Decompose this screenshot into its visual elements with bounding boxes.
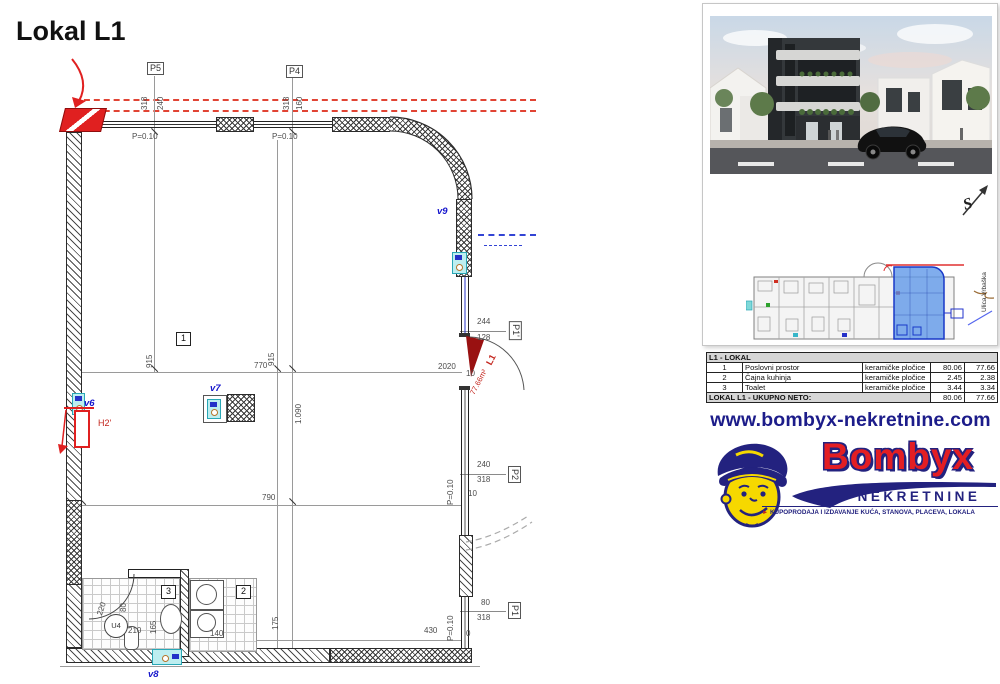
- vent-fixture-v8: [152, 649, 182, 665]
- page: Lokal L1: [0, 0, 1000, 684]
- blue-dashed-line-2: [484, 245, 522, 246]
- vent-label-v6: v6: [84, 398, 95, 409]
- dim-165: 165: [150, 621, 158, 634]
- vent-fixture-v9: [452, 252, 467, 274]
- dim-p5-p010: P=0.10: [132, 133, 158, 141]
- brand-name: Bombyx: [798, 436, 998, 478]
- row-name: Čajna kuhinja: [743, 373, 863, 383]
- window-top-1: [98, 121, 216, 128]
- dim-p4-160: 160: [296, 97, 304, 110]
- wall-left-pier: [66, 500, 82, 585]
- table-header: L1 - LOKAL: [707, 353, 998, 363]
- row-material: keramičke pločice: [863, 373, 931, 383]
- dim-790: 790: [262, 494, 275, 502]
- entrance-marker-block: [59, 108, 107, 132]
- dim-p5-240: 240: [157, 97, 165, 110]
- dim-p2-240: 240: [477, 461, 490, 469]
- column-v7: [227, 394, 255, 422]
- dim-p1-p010: P=0.10: [447, 615, 455, 641]
- site-plan: [746, 251, 996, 343]
- grid-marker-p2: P2: [508, 466, 521, 483]
- window-top-2: [254, 121, 332, 128]
- wall-bottom-right: [330, 648, 472, 663]
- dim-p5-318: 318: [141, 97, 149, 110]
- vent-label-v7: v7: [210, 383, 221, 394]
- pavement-line: [60, 666, 480, 667]
- street-label: Ulica Vrbaška: [981, 272, 988, 312]
- row-net: 77.66: [965, 363, 998, 373]
- room-label-2: 2: [236, 585, 251, 599]
- grid-marker-p1p: P1': [509, 321, 522, 340]
- vent-label-v8: v8: [148, 669, 159, 680]
- dim-p1-80: 80: [481, 599, 490, 607]
- table-row: 1 Poslovni prostor keramičke pločice 80.…: [707, 363, 998, 373]
- row-num: 2: [707, 373, 743, 383]
- dim-p1-318: 318: [477, 614, 490, 622]
- room-label-3: 3: [161, 585, 176, 599]
- pier-top-2: [332, 117, 392, 132]
- dim-915-a: 915: [146, 355, 154, 368]
- row-net: 2.38: [965, 373, 998, 383]
- dim-128: 128: [477, 334, 490, 342]
- grid-marker-p4: P4: [286, 65, 303, 78]
- area-table: L1 - LOKAL 1 Poslovni prostor keramičke …: [706, 352, 998, 403]
- vent-label-v9: v9: [437, 206, 448, 217]
- dim-p2-318: 318: [477, 476, 490, 484]
- tree: [750, 92, 774, 116]
- table-row: 3 Toalet keramičke pločice 3.44 3.34: [707, 383, 998, 393]
- dim-p4-318: 318: [283, 97, 291, 110]
- row-material: keramičke pločice: [863, 363, 931, 373]
- pier-top-1: [216, 117, 254, 132]
- dim-430: 430: [424, 627, 437, 635]
- row-area: 2.45: [931, 373, 965, 383]
- website-url[interactable]: www.bombyx-nekretnine.com: [703, 409, 998, 432]
- floor-plan: U4 P5 P4 P1': [0, 0, 560, 684]
- dim-770: 770: [254, 362, 267, 370]
- grid-line-p4: [292, 78, 293, 652]
- visual-panel: S Ulica Vrbaška: [702, 3, 998, 346]
- road: [710, 148, 992, 174]
- wall-curve-outline: [388, 115, 476, 203]
- dim-175: 175: [272, 617, 280, 630]
- row-material: keramičke pločice: [863, 383, 931, 393]
- brand-tagline: ► KUPOPRODAJA I IZDAVANJE KUĆA, STANOVA,…: [762, 506, 998, 516]
- row-num: 1: [707, 363, 743, 373]
- grid-line-a: [277, 140, 278, 652]
- room-label-1: 1: [176, 332, 191, 346]
- dim-line-770: [82, 372, 462, 373]
- dim-915-b: 915: [268, 353, 276, 366]
- dim-210: 210: [128, 627, 141, 635]
- table-row: 2 Čajna kuhinja keramičke pločice 2.45 2…: [707, 373, 998, 383]
- table-footer-row: LOKAL L1 - UKUPNO NETO: 80.06 77.66: [707, 393, 998, 403]
- row-net: 3.34: [965, 383, 998, 393]
- tagline-text: KUPOPRODAJA I IZDAVANJE KUĆA, STANOVA, P…: [770, 509, 975, 516]
- entrance-arrow-icon: [58, 55, 108, 111]
- row-area: 80.06: [931, 363, 965, 373]
- north-arrow-icon: S: [955, 181, 993, 223]
- site-unit-l1-highlight: [894, 267, 944, 339]
- dim-p1-0: 0: [466, 630, 470, 638]
- radiator-label: H2': [98, 418, 111, 428]
- dim-244: 244: [477, 318, 490, 326]
- radiator-icon: [74, 410, 90, 448]
- dim-p2-p010: P=0.10: [447, 479, 455, 505]
- row-name: Poslovni prostor: [743, 363, 863, 373]
- kitchen-sink-icon: [196, 584, 217, 605]
- row-num: 3: [707, 383, 743, 393]
- dim-p4-p010: P=0.10: [272, 133, 298, 141]
- grid-marker-p5: P5: [147, 62, 164, 75]
- tagline-arrow-icon: ►: [762, 509, 768, 516]
- table-footer-label: LOKAL L1 - UKUPNO NETO:: [707, 393, 931, 403]
- door-swing-dashed: [462, 505, 542, 560]
- dim-80a: 80: [120, 603, 128, 612]
- window-p1: [461, 597, 469, 648]
- dim-10a: 10: [466, 370, 475, 378]
- glass-right-1: [461, 277, 469, 333]
- bath-door-arc: [84, 570, 140, 626]
- brand-subtitle: NEKRETNINE: [840, 489, 998, 504]
- vent-fixture-v7: [207, 399, 221, 419]
- dim-p2-10: 10: [468, 490, 477, 498]
- dim-140: 140: [210, 630, 223, 638]
- red-dashed-line-bottom: [74, 110, 536, 112]
- mascot-icon: [706, 436, 798, 533]
- dim-1090: 1.090: [295, 404, 303, 424]
- grid-marker-p1: P1: [508, 602, 521, 619]
- building-render-image: [710, 16, 992, 174]
- logo: Bombyx NEKRETNINE ► KUPOPRODAJA I IZDAVA…: [706, 434, 998, 534]
- row-name: Toalet: [743, 383, 863, 393]
- footer-area: 80.06: [931, 393, 965, 403]
- row-area: 3.44: [931, 383, 965, 393]
- blue-dashed-line-1: [478, 234, 536, 236]
- dim-line-790: [66, 505, 462, 506]
- washbasin-icon: [160, 604, 182, 634]
- footer-net: 77.66: [965, 393, 998, 403]
- dim-2020: 2020: [438, 363, 456, 371]
- radiator-arrow: [56, 408, 76, 456]
